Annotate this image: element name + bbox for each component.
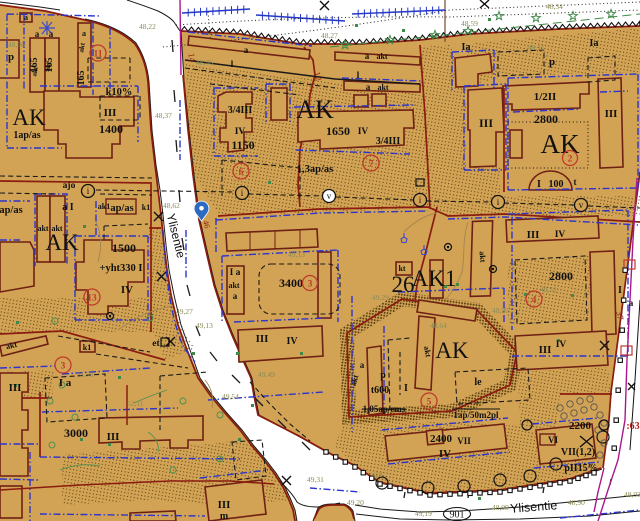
svg-text:165: 165 [29, 58, 40, 73]
svg-text:49,31: 49,31 [307, 475, 324, 484]
svg-text:48,90: 48,90 [568, 498, 585, 507]
svg-text:1150: 1150 [231, 138, 254, 152]
svg-text:2400: 2400 [430, 433, 453, 445]
svg-text:ak1: ak1 [98, 202, 110, 211]
svg-text:2200: 2200 [569, 420, 592, 432]
svg-text:48,59: 48,59 [461, 19, 478, 28]
svg-text:3: 3 [61, 362, 66, 372]
svg-text:5: 5 [427, 398, 432, 408]
svg-text:49,13: 49,13 [196, 321, 213, 330]
svg-text:IV: IV [235, 127, 246, 137]
svg-text:a: a [82, 29, 86, 38]
svg-text:VII: VII [457, 436, 471, 446]
svg-text:6: 6 [239, 168, 244, 178]
svg-text:48,64: 48,64 [430, 321, 447, 330]
svg-text:v: v [327, 191, 332, 201]
svg-text:48,96: 48,96 [8, 40, 25, 49]
svg-text:165: 165 [76, 71, 87, 86]
svg-text:III: III [479, 116, 493, 130]
svg-text:48,27: 48,27 [321, 31, 338, 40]
svg-text:k10%: k10% [106, 87, 133, 98]
svg-text:3/4III: 3/4III [228, 105, 253, 116]
svg-text:III: III [218, 499, 231, 511]
svg-text:III: III [605, 108, 618, 120]
svg-text:I a: I a [230, 268, 241, 278]
svg-text:49,20: 49,20 [347, 498, 364, 507]
svg-text:III: III [104, 107, 117, 119]
svg-text:3/4III: 3/4III [376, 136, 401, 147]
svg-text:7: 7 [369, 160, 374, 170]
svg-text:+yht330 I: +yht330 I [99, 263, 142, 274]
svg-text:akt: akt [51, 224, 62, 233]
svg-text:IV: IV [439, 448, 451, 460]
svg-text:1,3ap/as: 1,3ap/as [297, 164, 333, 175]
svg-text:49,27: 49,27 [176, 307, 193, 316]
svg-text:I: I [618, 285, 622, 296]
svg-text:3000: 3000 [64, 426, 88, 440]
svg-text:49,19: 49,19 [415, 509, 432, 518]
svg-text:1ap/as: 1ap/as [13, 130, 40, 141]
svg-text:49,49: 49,49 [258, 370, 275, 379]
svg-text:165: 165 [44, 58, 55, 73]
svg-text:v: v [579, 200, 584, 210]
svg-text:49,13: 49,13 [288, 250, 305, 259]
svg-text:52,11: 52,11 [127, 399, 144, 408]
svg-text:et: et [152, 339, 160, 349]
svg-text:a: a [244, 45, 249, 55]
svg-text:VI: VI [548, 435, 558, 445]
svg-text:akt: akt [377, 83, 388, 92]
svg-text:a: a [49, 29, 54, 39]
svg-text:akt: akt [228, 281, 239, 290]
svg-text:4: 4 [532, 296, 537, 306]
svg-text:ap/as: ap/as [110, 203, 133, 214]
svg-text:AK: AK [12, 105, 46, 130]
svg-text:le: le [474, 377, 482, 388]
svg-text:p: p [8, 51, 14, 63]
svg-text:1400: 1400 [99, 122, 123, 136]
svg-text:48,80: 48,80 [492, 306, 509, 315]
svg-text:IV: IV [358, 127, 369, 137]
svg-text:Ia: Ia [590, 38, 599, 49]
svg-text:ajo: ajo [63, 181, 76, 191]
svg-text:a: a [233, 291, 238, 301]
svg-text:III: III [539, 344, 552, 356]
svg-text:IV: IV [286, 336, 298, 347]
svg-text:11: 11 [94, 50, 103, 60]
svg-text:2800: 2800 [534, 112, 558, 126]
svg-text:m: m [220, 511, 229, 521]
svg-text:t600: t600 [371, 385, 389, 396]
svg-text:III: III [256, 333, 269, 345]
svg-text:a: a [35, 29, 40, 39]
svg-text:49,54: 49,54 [222, 392, 239, 401]
svg-text:I: I [537, 179, 541, 190]
svg-text:IV: IV [121, 284, 133, 296]
svg-text:a I: a I [62, 202, 74, 213]
svg-text:IV: IV [555, 230, 566, 240]
svg-text:1500: 1500 [112, 241, 136, 255]
svg-text:pII15%: pII15% [564, 463, 597, 474]
svg-text:Ia: Ia [462, 42, 471, 53]
svg-text:a: a [360, 360, 365, 370]
svg-text:kt: kt [398, 264, 405, 273]
svg-text:p: p [549, 56, 555, 68]
svg-text:a: a [629, 298, 634, 308]
svg-text:k1: k1 [142, 203, 150, 212]
svg-text:AK: AK [296, 95, 334, 124]
svg-text:AK: AK [541, 129, 580, 159]
svg-text:k1: k1 [83, 343, 91, 352]
svg-text:III: III [527, 229, 540, 241]
svg-text:48,46: 48,46 [196, 58, 213, 67]
svg-text:1ap/50m2pl: 1ap/50m2pl [453, 410, 499, 420]
svg-text:I a: I a [59, 377, 72, 389]
svg-text::63: :63 [626, 421, 639, 432]
svg-text:51,71: 51,71 [77, 370, 94, 379]
svg-text:akt: akt [376, 52, 387, 61]
svg-text:/18: /18 [373, 470, 383, 479]
svg-text:VII(1,2): VII(1,2) [561, 447, 595, 458]
svg-text:1/2II: 1/2II [534, 91, 557, 103]
svg-text:III: III [107, 431, 120, 443]
svg-text:III: III [9, 382, 22, 394]
svg-text:48,51: 48,51 [540, 285, 557, 294]
svg-text:akt: akt [478, 251, 488, 263]
svg-text:48,22: 48,22 [139, 22, 156, 31]
svg-text:IV: IV [556, 340, 567, 350]
svg-text:3: 3 [308, 280, 313, 290]
svg-text:AK1: AK1 [412, 266, 457, 291]
svg-text:a: a [24, 13, 28, 22]
svg-text:100: 100 [549, 179, 564, 190]
svg-text:48,11: 48,11 [528, 43, 545, 52]
svg-text:p: p [380, 370, 386, 381]
svg-text:48,37: 48,37 [155, 111, 172, 120]
svg-text:901: 901 [450, 510, 465, 521]
svg-text:49,29: 49,29 [372, 293, 389, 302]
svg-text:AK: AK [435, 338, 469, 363]
svg-text:akt: akt [37, 224, 48, 233]
svg-text:t: t [574, 177, 577, 187]
svg-text:48,93: 48,93 [624, 490, 640, 499]
svg-text:a: a [365, 51, 370, 61]
svg-text:AK: AK [45, 230, 79, 255]
svg-text:I: I [404, 383, 408, 394]
svg-text:a: a [366, 82, 371, 92]
svg-text:1650: 1650 [326, 124, 350, 138]
svg-text:48,62: 48,62 [163, 201, 180, 210]
svg-text:ap/as: ap/as [0, 205, 23, 216]
svg-text:2800: 2800 [549, 269, 573, 283]
svg-text:48,99: 48,99 [492, 503, 509, 512]
svg-text:3400: 3400 [279, 276, 303, 290]
svg-text:2: 2 [568, 155, 573, 165]
svg-text:48,34: 48,34 [546, 2, 563, 11]
svg-text:13: 13 [87, 294, 97, 304]
